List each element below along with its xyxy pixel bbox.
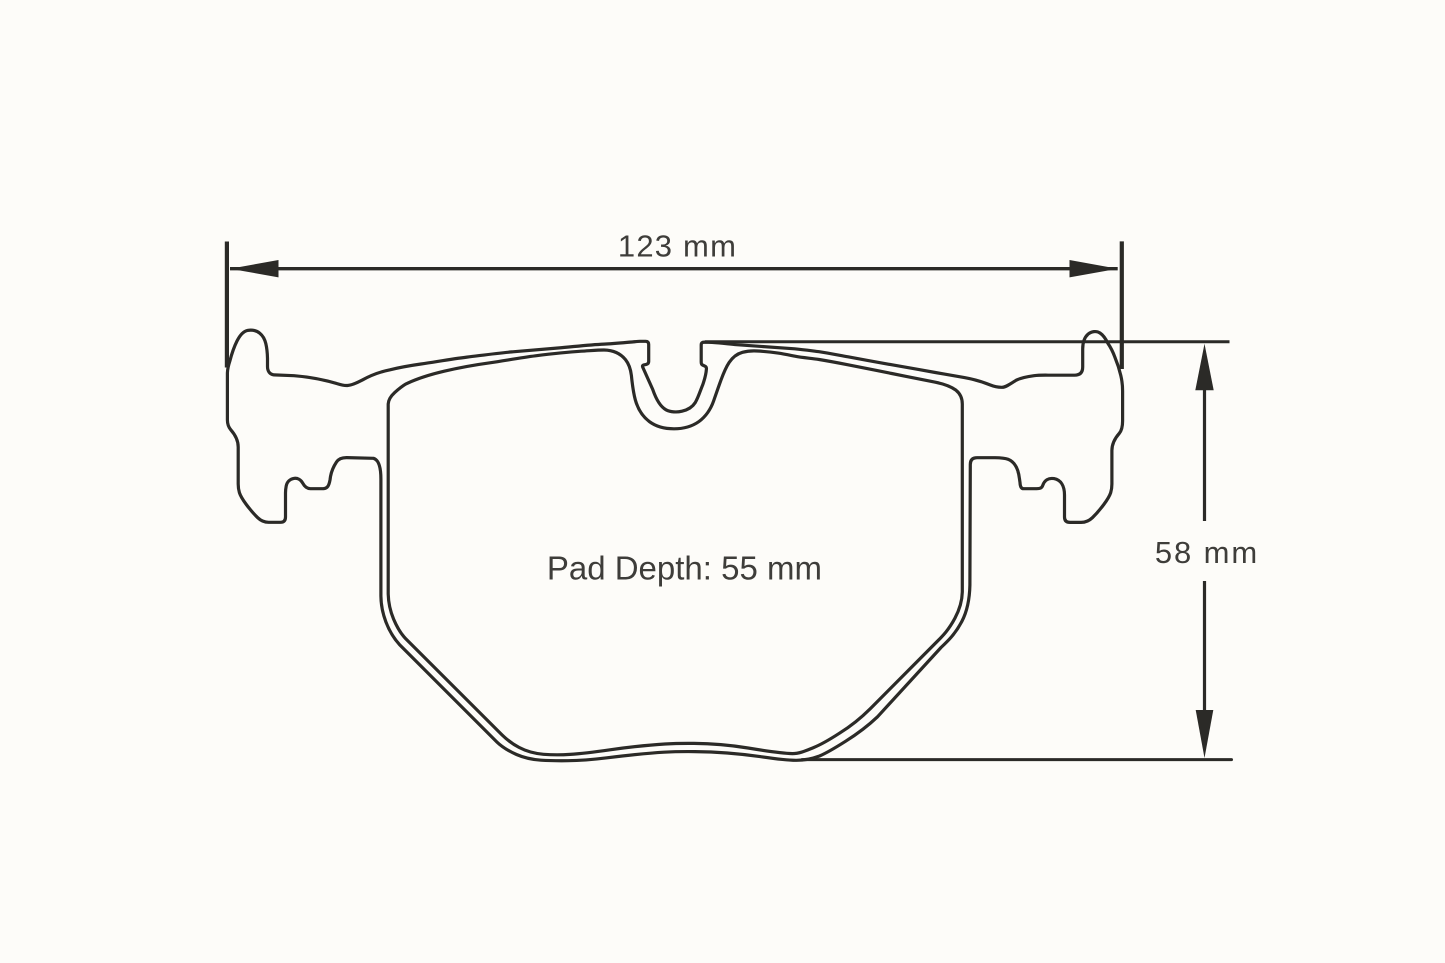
svg-text:58 mm: 58 mm (1155, 535, 1259, 570)
svg-text:Pad Depth: 55 mm: Pad Depth: 55 mm (547, 549, 822, 586)
svg-text:123 mm: 123 mm (618, 229, 737, 264)
